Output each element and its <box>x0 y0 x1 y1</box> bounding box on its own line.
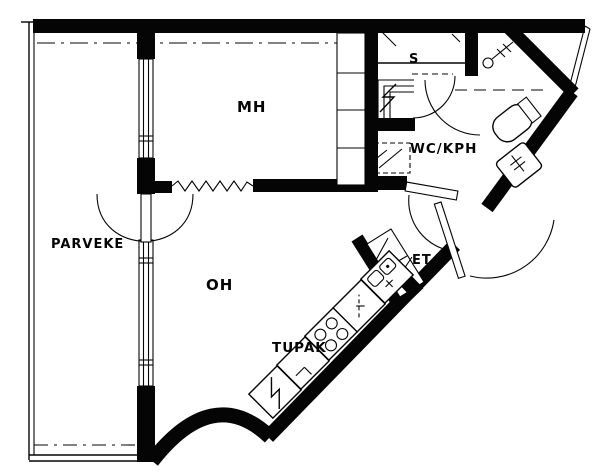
ne-diagonal-wall <box>506 25 574 93</box>
divider-wall-segment <box>137 386 155 462</box>
balcony: PARVEKE <box>21 22 150 461</box>
room-label-oh: OH <box>206 276 233 294</box>
divider-wall-segment <box>137 158 155 194</box>
floor-plan-drawing: PARVEKE <box>0 0 600 474</box>
top-wall <box>33 19 585 33</box>
sauna-door-swing-arc <box>413 76 455 118</box>
floor-plan-sheet: PARVEKE <box>0 0 600 474</box>
bedroom: MH <box>153 19 378 193</box>
bedroom-closets <box>337 33 365 185</box>
kitchen: TUPAK <box>249 251 413 418</box>
room-label-tupak: TUPAK <box>272 340 327 356</box>
shower-symbol <box>483 42 513 68</box>
shower-door-arc <box>425 80 480 135</box>
entry-door <box>434 202 554 278</box>
balcony-door-leaf <box>141 194 151 242</box>
wall-break-zigzag <box>172 181 253 191</box>
entry-door-swing-arc <box>470 220 554 278</box>
room-label-mh: MH <box>237 98 266 116</box>
sauna-east-wall <box>465 26 478 76</box>
divider-wall-segment <box>137 19 155 59</box>
sauna-corner-tick2 <box>452 34 460 42</box>
bedroom-east-wall <box>365 19 378 192</box>
room-label-parveke: PARVEKE <box>51 237 124 252</box>
room-label-et: ET <box>412 253 432 268</box>
curved-exterior-wall <box>152 415 270 461</box>
washing-machine-reservation <box>374 143 410 173</box>
sauna-south-wall <box>375 118 415 131</box>
bath-west-wall <box>365 176 407 190</box>
sauna: S <box>375 26 478 131</box>
sauna-heater <box>380 84 396 112</box>
room-label-sauna: S <box>409 52 419 67</box>
bedroom-south-wall-stub <box>153 181 172 193</box>
room-label-wc-kph: WC/KPH <box>410 141 477 157</box>
sauna-benches <box>378 80 414 118</box>
balcony-door <box>97 194 193 242</box>
